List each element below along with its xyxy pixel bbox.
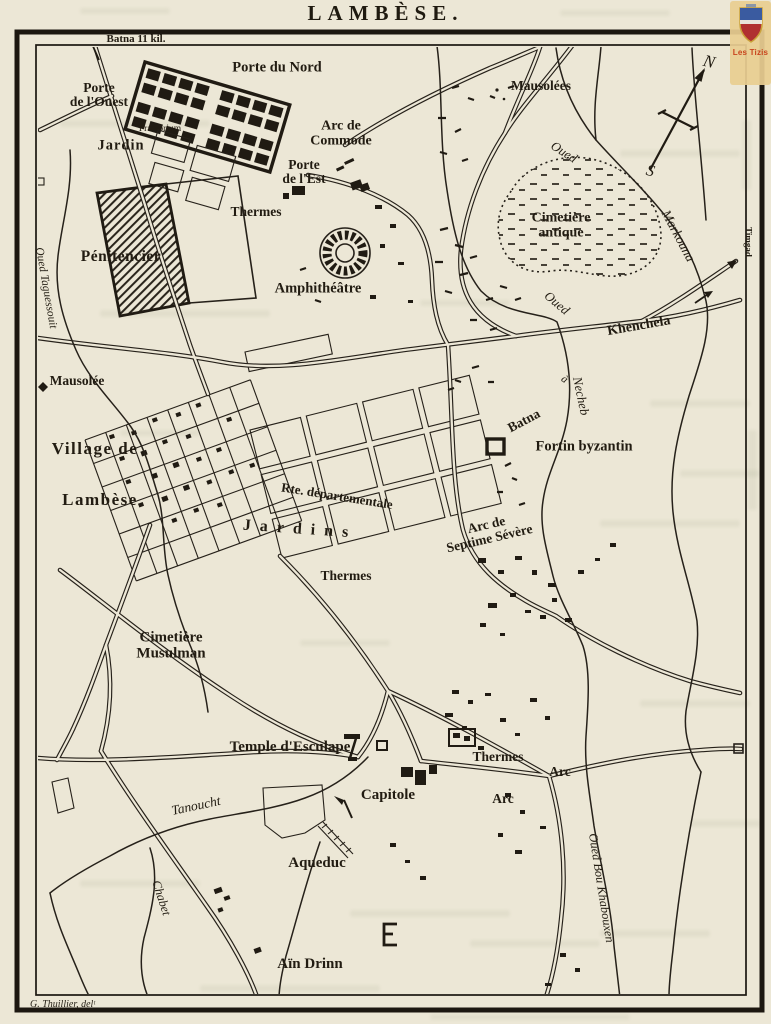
watermark-badge: Les Tizis bbox=[730, 1, 771, 85]
map-label-rte-departementale: Rte. départementale bbox=[280, 480, 393, 511]
map-label-porte-du-nord: Porte du Nord bbox=[232, 60, 321, 75]
map-label-amphitheatre: Amphithéâtre bbox=[275, 281, 362, 296]
map-label-village-de: Village de bbox=[52, 440, 139, 458]
map-label-oued-markouna-oued: Oued bbox=[548, 139, 579, 166]
map-label-cimetiere-antique: Cimetière antique bbox=[532, 211, 591, 240]
map-label-compass-s: S bbox=[644, 163, 656, 181]
map-label-arc-sud: Arc bbox=[492, 792, 514, 806]
map-label-porte-de-l-ouest: Porte de l'Ouest bbox=[70, 81, 128, 109]
map-label-penitencier: Pénitencier bbox=[81, 249, 161, 265]
map-label-chabet: Chabet bbox=[149, 879, 173, 917]
map-label-jardin: Jardin bbox=[97, 138, 144, 153]
crest-icon bbox=[737, 4, 765, 46]
map-label-timgad: Timgad bbox=[743, 227, 752, 257]
map-label-fortin-byzantin: Fortin byzantin bbox=[535, 439, 632, 454]
map-label-aqueduc: Aqueduc bbox=[288, 856, 346, 872]
watermark-text: Les Tizis bbox=[733, 48, 768, 57]
map-label-arc-de-septime-severe: Arc de Septime Sévère bbox=[442, 508, 534, 555]
map-page: Batna 11 kil.Porte du NordPorte de l'Oue… bbox=[0, 0, 771, 1024]
map-label-tanoucht: Tanoucht bbox=[170, 794, 222, 818]
map-label-ain-drinn: Aïn Drinn bbox=[277, 957, 342, 973]
engraver-credit: G. Thuillier, delᵗ bbox=[30, 999, 95, 1010]
map-label-khenchela: Khenchela bbox=[606, 314, 671, 340]
map-label-temple-esculape: Temple d'Esculape bbox=[230, 740, 351, 756]
map-label-jardins: Jardins bbox=[242, 518, 357, 543]
map-labels: Batna 11 kil.Porte du NordPorte de l'Oue… bbox=[0, 0, 771, 1024]
map-label-arc-de-commode: Arc de Commode bbox=[310, 119, 371, 148]
map-label-mausolee: Mausolée bbox=[50, 374, 105, 388]
map-label-oued-taguessouit: Oued Taguessouit bbox=[33, 246, 59, 329]
map-label-praetorium: Praetorium bbox=[139, 125, 181, 135]
map-label-cimetiere-musulman: Cimetière Musulman bbox=[136, 630, 205, 662]
map-label-oued-necheb: Necheb bbox=[570, 376, 591, 417]
map-title: LAMBÈSE. bbox=[308, 1, 464, 26]
map-label-porte-de-l-est: Porte de l'Est bbox=[282, 158, 325, 186]
map-label-road-batna: Batna bbox=[505, 407, 542, 436]
map-label-thermes-nord: Thermes bbox=[231, 205, 282, 219]
map-label-oued-markouna: Markouna bbox=[659, 208, 698, 264]
map-label-capitole: Capitole bbox=[361, 788, 415, 804]
map-label-thermes-sud: Thermes bbox=[473, 750, 524, 764]
map-label-arc-nord: Arc bbox=[549, 765, 571, 779]
map-label-road-a: à bbox=[558, 374, 569, 387]
map-label-batna-11kil: Batna 11 kil. bbox=[107, 34, 166, 46]
map-label-lambese-village: Lambèse bbox=[62, 491, 138, 509]
map-label-thermes-centre: Thermes bbox=[321, 569, 372, 583]
map-label-compass-n: N bbox=[701, 52, 717, 72]
map-label-oued-necheb-oued: Oued bbox=[542, 289, 572, 318]
map-label-mausolees: Mausolées bbox=[511, 79, 571, 93]
map-label-oued-bou-khabouxen: Oued Bou Khabouxen bbox=[586, 832, 616, 943]
